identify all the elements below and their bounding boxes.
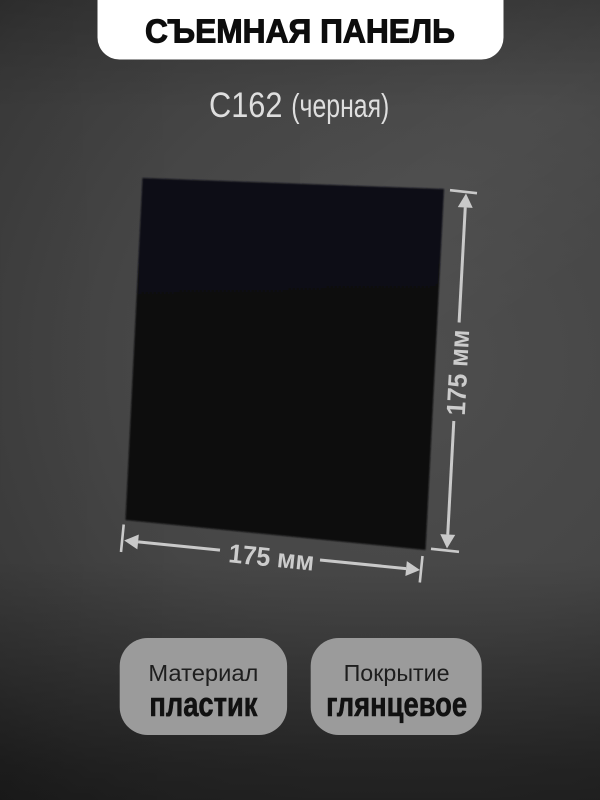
svg-text:Покрытие: Покрытие <box>344 660 450 686</box>
svg-text:глянцевое: глянцевое <box>326 686 467 724</box>
svg-text:175 мм: 175 мм <box>441 329 475 416</box>
svg-text:СЪЕМНАЯ ПАНЕЛЬ: СЪЕМНАЯ ПАНЕЛЬ <box>145 13 455 50</box>
svg-text:(черная): (черная) <box>291 87 389 124</box>
svg-text:С162: С162 <box>209 86 283 125</box>
svg-text:Материал: Материал <box>148 660 258 686</box>
svg-text:пластик: пластик <box>149 686 258 724</box>
